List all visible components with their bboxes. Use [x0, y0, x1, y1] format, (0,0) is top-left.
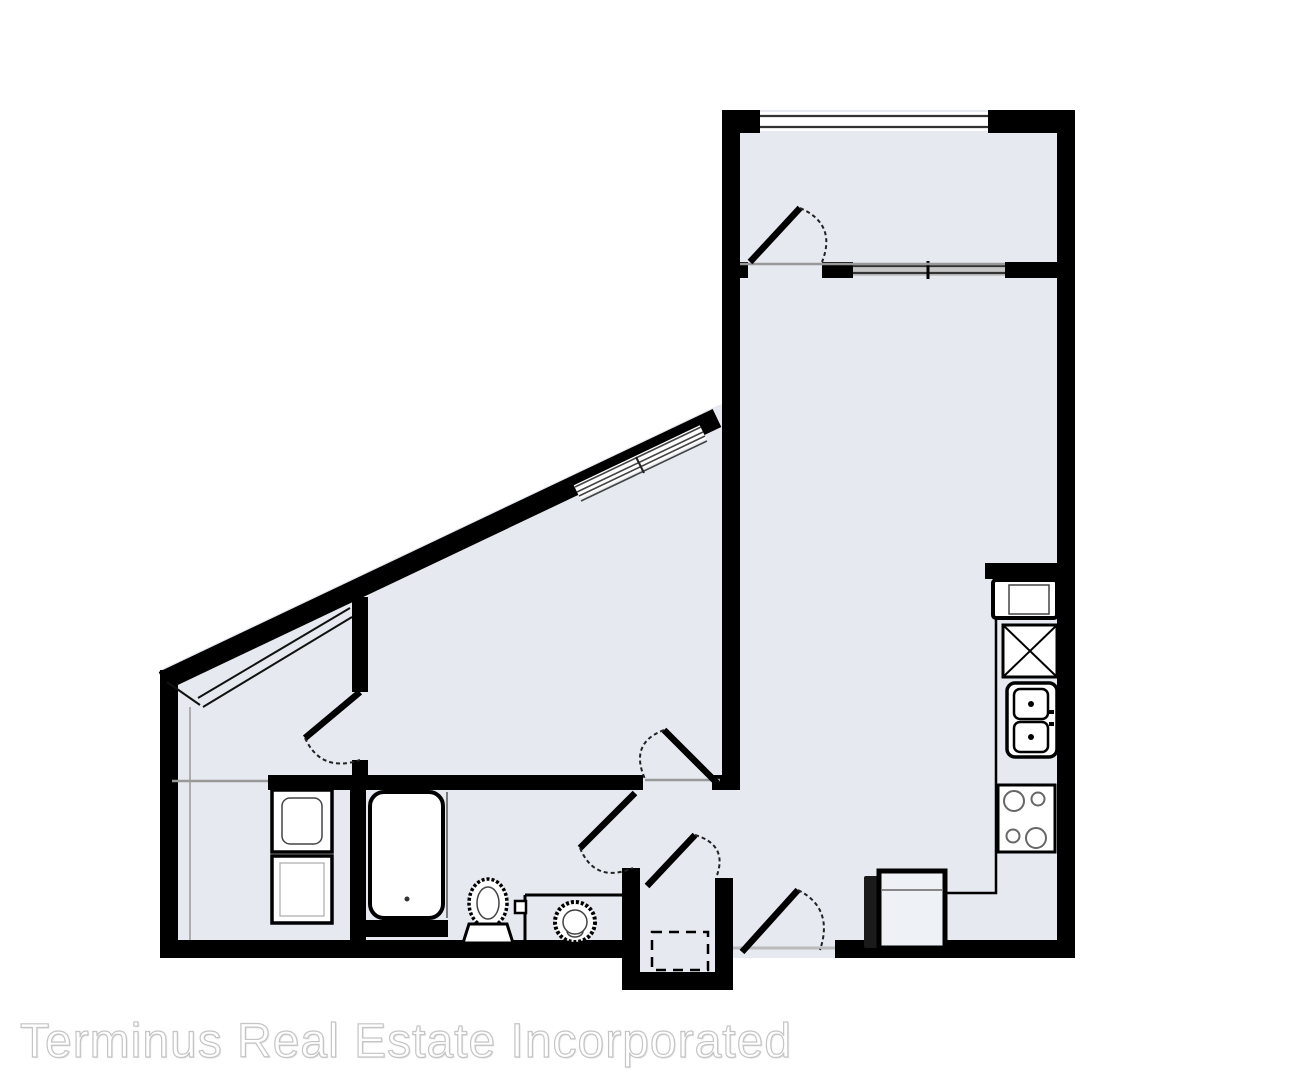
- stacked-washer-dryer: [272, 790, 332, 923]
- floor-plan-image: Terminus Real Estate Incorporated: [0, 0, 1295, 1080]
- dining-table: [864, 871, 945, 948]
- pantry-cabinet: [1003, 625, 1057, 677]
- floor-plan-drawing: [0, 0, 1295, 1080]
- double-kitchen-sink: [1007, 683, 1057, 757]
- range-cooktop: [998, 785, 1055, 852]
- bathtub: [370, 792, 447, 918]
- upper-bedroom-window: [760, 112, 988, 131]
- refrigerator: [993, 580, 1057, 618]
- watermark-text: Terminus Real Estate Incorporated: [20, 1014, 792, 1069]
